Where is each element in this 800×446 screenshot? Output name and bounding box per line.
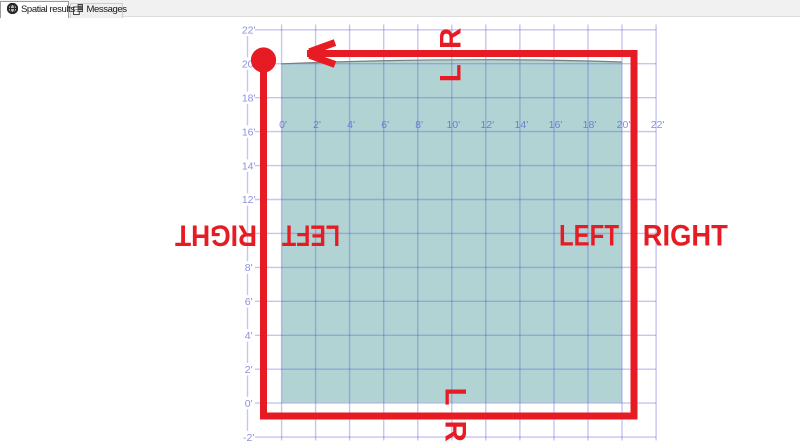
svg-text:RIGHT: RIGHT xyxy=(175,219,257,252)
svg-text:10': 10' xyxy=(446,119,460,131)
svg-text:L: L xyxy=(435,64,468,82)
svg-text:8': 8' xyxy=(415,119,423,131)
svg-text:2': 2' xyxy=(313,119,321,131)
svg-text:20': 20' xyxy=(617,119,631,131)
svg-text:12': 12' xyxy=(480,119,494,131)
svg-text:14': 14' xyxy=(515,119,529,131)
svg-text:0': 0' xyxy=(245,398,253,410)
svg-text:-2': -2' xyxy=(243,432,254,444)
svg-text:22': 22' xyxy=(242,25,256,37)
svg-text:4': 4' xyxy=(347,119,355,131)
svg-text:8': 8' xyxy=(245,262,253,274)
svg-text:LEFT: LEFT xyxy=(559,220,619,253)
svg-text:R: R xyxy=(435,28,468,49)
svg-text:18': 18' xyxy=(583,119,597,131)
svg-text:6': 6' xyxy=(245,296,253,308)
svg-text:0': 0' xyxy=(279,119,287,131)
svg-text:16': 16' xyxy=(549,119,563,131)
svg-text:RIGHT: RIGHT xyxy=(643,220,728,253)
svg-text:LEFT: LEFT xyxy=(282,219,340,252)
svg-text:12': 12' xyxy=(242,194,256,206)
svg-text:4': 4' xyxy=(245,330,253,342)
svg-text:L: L xyxy=(439,388,472,406)
svg-text:R: R xyxy=(439,421,472,442)
svg-text:2': 2' xyxy=(245,364,253,376)
svg-text:18': 18' xyxy=(242,92,256,104)
svg-text:6': 6' xyxy=(381,119,389,131)
svg-text:22': 22' xyxy=(651,119,665,131)
svg-text:16': 16' xyxy=(242,126,256,138)
svg-text:14': 14' xyxy=(242,160,256,172)
